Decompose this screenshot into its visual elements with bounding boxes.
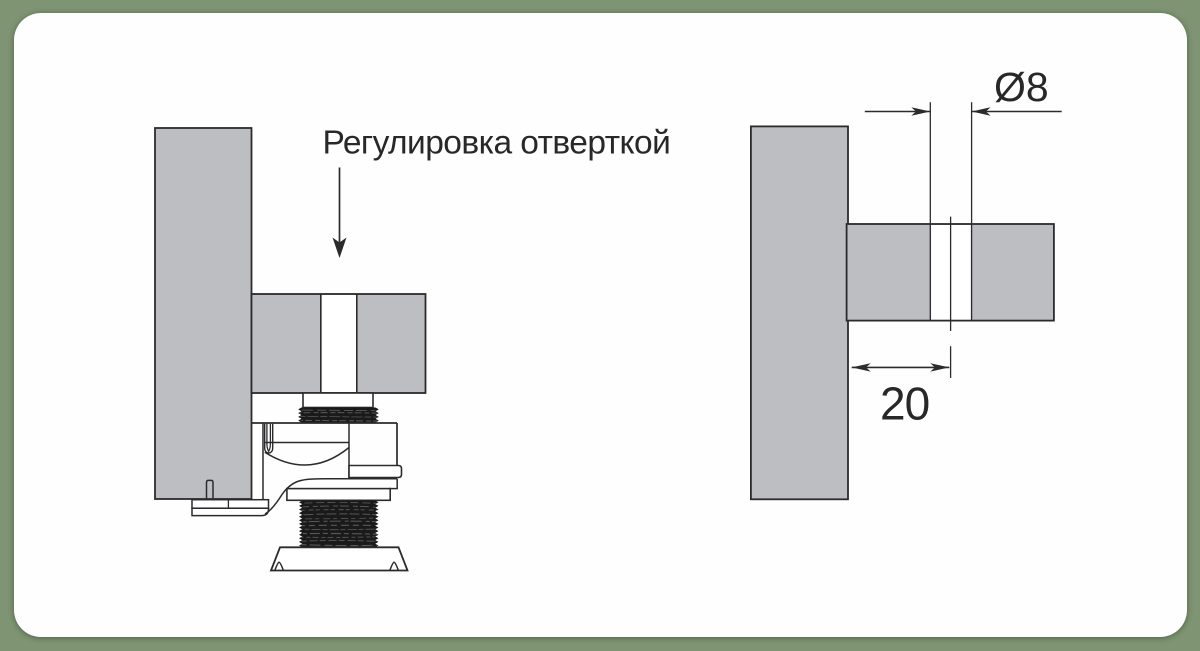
svg-text:Регулировка отверткой: Регулировка отверткой <box>323 125 671 162</box>
svg-text:20: 20 <box>880 378 929 430</box>
svg-text:Ø8: Ø8 <box>994 64 1049 110</box>
